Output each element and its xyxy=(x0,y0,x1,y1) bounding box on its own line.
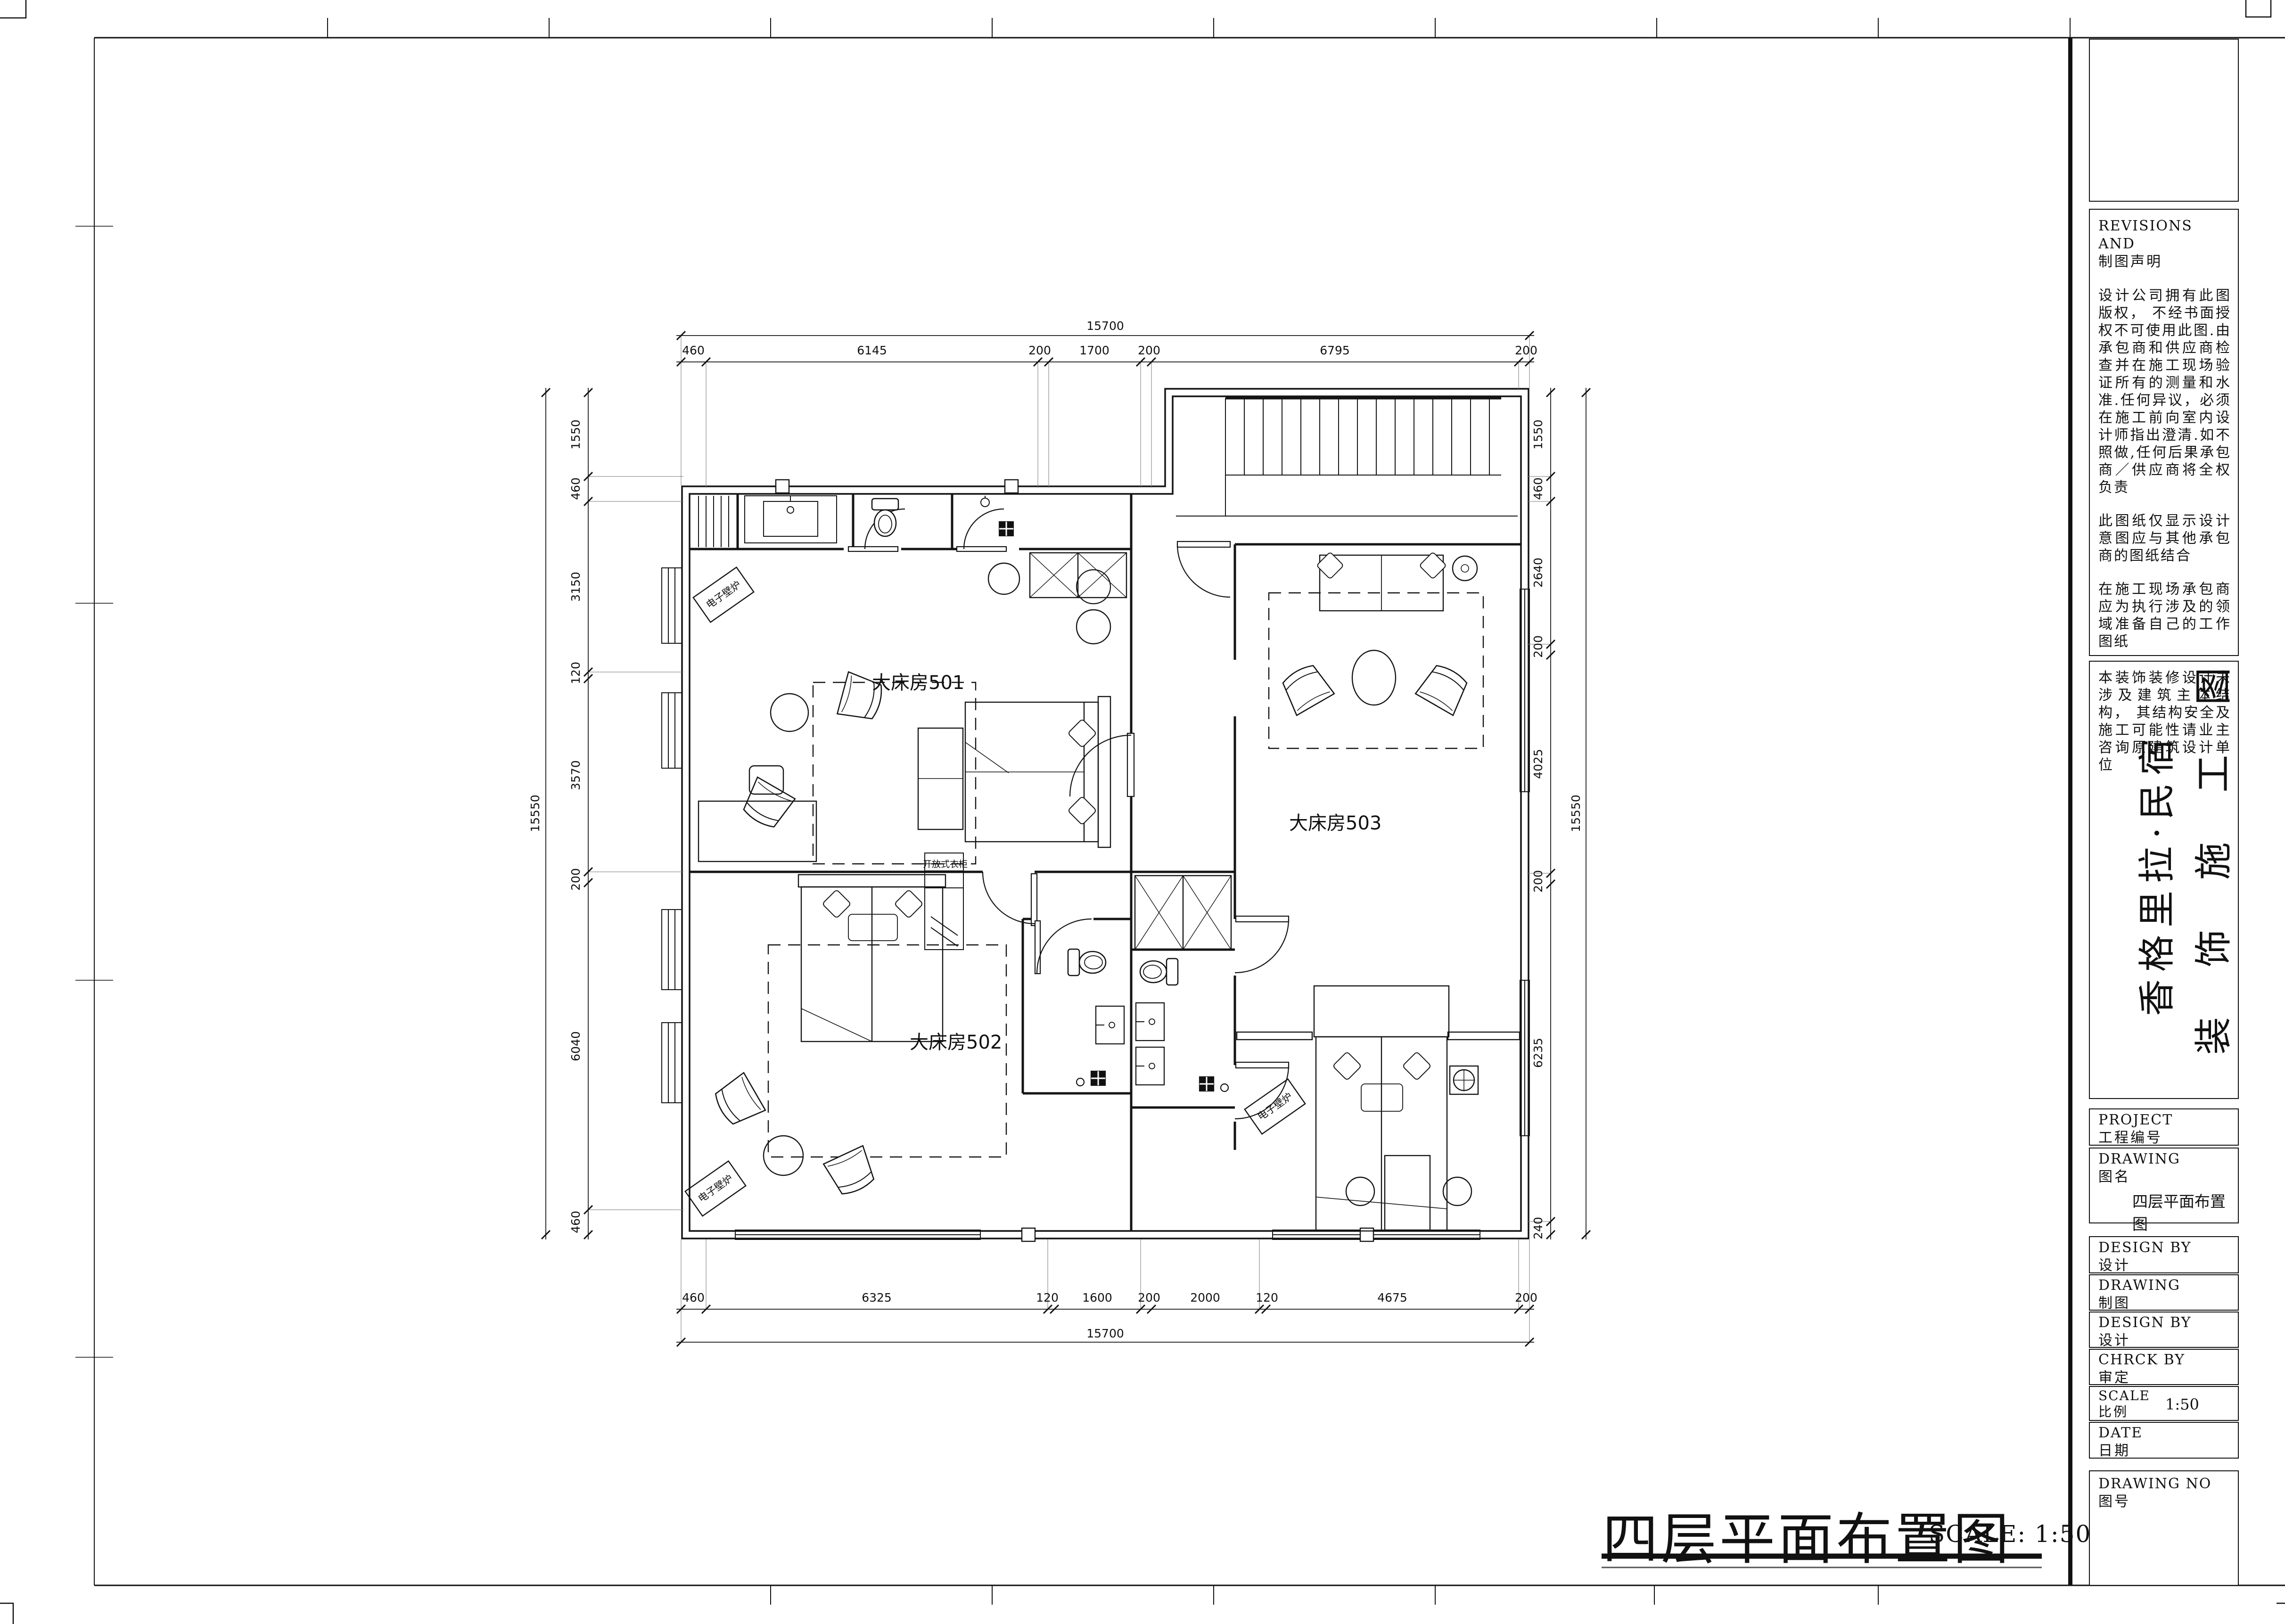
dim: 6040 xyxy=(569,1031,583,1061)
stool-hall xyxy=(1077,570,1110,604)
doors xyxy=(848,509,1289,1119)
column-markers xyxy=(776,480,1373,1241)
dim: 200 xyxy=(1531,635,1545,658)
sink-icon xyxy=(1136,1047,1164,1085)
revisions-heading-en: REVISIONS AND xyxy=(2098,217,2231,253)
cad-canvas: 大床房501 大床房502 大床房503 电子壁炉 电子壁炉 电子壁炉 开放式衣… xyxy=(0,0,2285,1624)
field-label-en: CHRCK BY xyxy=(2098,1351,2231,1369)
toilet-icon xyxy=(1068,949,1106,976)
field-drafting: DRAWING 制图 xyxy=(2089,1274,2239,1311)
dim: 4675 xyxy=(1377,1291,1407,1304)
field-check-by: CHRCK BY 审定 xyxy=(2089,1349,2239,1385)
fireplace-label: 电子壁炉 xyxy=(696,1173,735,1205)
field-label-zh: 图号 xyxy=(2098,1493,2231,1511)
shower-head-icon xyxy=(1077,1078,1084,1086)
field-label-en: DESIGN BY xyxy=(2098,1239,2231,1257)
dim: 200 xyxy=(1515,1291,1537,1304)
dim: 120 xyxy=(569,662,583,684)
dim: 3150 xyxy=(569,572,583,602)
dim-left-overall: 15550 xyxy=(528,795,542,832)
armchair-icon xyxy=(823,1146,879,1198)
dim-bottom-overall: 15700 xyxy=(1086,1327,1124,1340)
core-wardrobe xyxy=(1135,876,1231,950)
title-block-empty-box xyxy=(2089,39,2239,202)
field-design-by: DESIGN BY 设计 xyxy=(2089,1236,2239,1273)
dimension-labels: 15700 460 6145 200 1700 200 6795 200 460… xyxy=(528,319,1583,1340)
dim: 1700 xyxy=(1079,344,1110,357)
open-wardrobe-label: 开放式衣柜 xyxy=(923,859,968,869)
field-label-en: DESIGN BY xyxy=(2098,1314,2231,1332)
bathroom-502 xyxy=(1068,949,1124,1086)
armchair-icon xyxy=(1278,661,1334,715)
dim: 4025 xyxy=(1531,749,1545,779)
dim: 200 xyxy=(1515,344,1537,357)
sink-icon xyxy=(1096,1006,1124,1044)
sink-icon xyxy=(1136,1003,1164,1041)
note-paragraph: 设计公司拥有此图版权， 不经书面授权不可使用此图.由承包商和供应商检查并在施工现… xyxy=(2098,287,2231,496)
toilet-icon xyxy=(872,499,898,536)
oval-table-503 xyxy=(1352,650,1396,705)
dim: 6235 xyxy=(1531,1038,1545,1068)
bed-501 xyxy=(965,697,1110,847)
field-drawing-no: DRAWING NO 图号 xyxy=(2089,1470,2239,1586)
dim: 6795 xyxy=(1320,344,1350,357)
note-paragraph: 在施工现场承包商应为执行涉及的领域准备自己的工作图纸 xyxy=(2098,581,2231,650)
corner-mark-bottom-left xyxy=(0,1603,13,1624)
shower-drain-icon xyxy=(999,522,1013,536)
desk-503 xyxy=(1385,1156,1430,1230)
dim: 1600 xyxy=(1082,1291,1112,1304)
field-label-en: DRAWING NO xyxy=(2098,1475,2231,1493)
field-label-zh: 图名 xyxy=(2098,1168,2231,1186)
revisions-heading-zh: 制图声明 xyxy=(2098,253,2231,271)
dim: 6145 xyxy=(857,344,887,357)
dim: 460 xyxy=(569,477,583,500)
armchair-icon xyxy=(1415,661,1472,715)
field-label-zh: 日期 xyxy=(2098,1442,2231,1460)
dim: 3570 xyxy=(569,760,583,790)
note-paragraph: 此图纸仅显示设计意图应与其他承包商的图纸结合 xyxy=(2098,512,2231,565)
interior-walls xyxy=(690,494,1521,1231)
dim-top-overall: 15700 xyxy=(1086,319,1124,333)
scale-value: 1:50 xyxy=(2165,1395,2199,1413)
fireplace-label: 电子壁炉 xyxy=(1256,1091,1295,1123)
dim: 2640 xyxy=(1531,558,1545,588)
field-label-en: SCALE xyxy=(2098,1388,2231,1404)
armchair-icon xyxy=(739,777,795,832)
bathroom-501 xyxy=(699,496,1013,547)
sheet-scale-note: SCALE: 1:50 xyxy=(1929,1520,2091,1548)
shower-drain-icon xyxy=(1091,1071,1105,1085)
fireplace-label: 电子壁炉 xyxy=(704,579,743,611)
field-label-en: DRAWING xyxy=(2098,1277,2231,1295)
shower-drain-icon xyxy=(1200,1077,1214,1091)
drawing-sheet: 大床房501 大床房502 大床房503 电子壁炉 电子壁炉 电子壁炉 开放式衣… xyxy=(0,0,2285,1624)
round-table-501 xyxy=(771,694,808,731)
shower-head-icon xyxy=(1221,1084,1228,1091)
room-label-502: 大床房502 xyxy=(910,1032,1002,1053)
dim: 6325 xyxy=(862,1291,892,1304)
dim: 1550 xyxy=(1531,419,1545,450)
shower-head-icon xyxy=(981,498,989,507)
room-label-501: 大床房501 xyxy=(872,672,964,694)
dim: 2000 xyxy=(1190,1291,1220,1304)
field-date: DATE 日期 xyxy=(2089,1422,2239,1459)
field-scale: SCALE 比例 1:50 xyxy=(2089,1386,2239,1421)
project-subtitle-vertical: 装 饰 施 工 图 xyxy=(2183,772,2238,1055)
rug-501 xyxy=(813,682,976,864)
toilet-icon xyxy=(1140,959,1178,985)
field-label-zh: 设计 xyxy=(2098,1332,2231,1350)
field-label-en: DATE xyxy=(2098,1424,2231,1442)
dim: 1550 xyxy=(569,419,583,450)
field-label-zh: 比例 xyxy=(2098,1404,2231,1420)
sheet-frame xyxy=(0,0,2285,1624)
dim: 200 xyxy=(1028,344,1051,357)
lamp-503 xyxy=(1453,556,1477,581)
project-title-vertical: 香格里拉·民宿 xyxy=(2128,790,2180,1016)
field-label-zh: 制图 xyxy=(2098,1295,2231,1312)
field-label-zh: 审定 xyxy=(2098,1369,2231,1387)
room-label-503: 大床房503 xyxy=(1289,812,1381,834)
room-503 xyxy=(1237,552,1520,1231)
corner-mark-top-right xyxy=(2246,0,2271,17)
dim: 200 xyxy=(1138,1291,1160,1304)
revisions-box: REVISIONS AND 制图声明 设计公司拥有此图版权， 不经书面授权不可使… xyxy=(2089,209,2239,656)
frame-ticks-top xyxy=(328,18,1878,38)
side-table-501 xyxy=(1077,610,1110,644)
corner-mark-top-left xyxy=(0,0,26,18)
field-label-zh: 工程编号 xyxy=(2098,1129,2231,1147)
sofa-503 xyxy=(1316,552,1447,611)
dim: 200 xyxy=(1531,870,1545,893)
dim: 460 xyxy=(682,344,705,357)
dim: 200 xyxy=(569,868,583,891)
dim: 460 xyxy=(1531,477,1545,500)
dim: 460 xyxy=(569,1211,583,1233)
dim: 200 xyxy=(1138,344,1160,357)
windows xyxy=(662,568,1529,1239)
field-project: PROJECT 工程编号 xyxy=(2089,1108,2239,1146)
dim: 460 xyxy=(682,1291,705,1304)
field-drawing-name: DRAWING 图名 四层平面布置图 xyxy=(2089,1148,2239,1223)
bed-502 xyxy=(798,875,945,1042)
dim: 120 xyxy=(1036,1291,1059,1304)
drawing-name-value: 四层平面布置图 xyxy=(2098,1186,2231,1234)
field-label-en: PROJECT xyxy=(2098,1111,2231,1129)
room-501 xyxy=(693,553,1126,864)
field-label-en: DRAWING xyxy=(2098,1150,2231,1168)
staircase xyxy=(1176,398,1518,516)
dim: 120 xyxy=(1256,1291,1278,1304)
dim: 240 xyxy=(1531,1217,1545,1239)
armchair-icon xyxy=(711,1073,765,1129)
stool-501 xyxy=(988,563,1019,594)
field-design-by2: DESIGN BY 设计 xyxy=(2089,1312,2239,1348)
floor-plan xyxy=(662,389,1529,1241)
bathroom-503 xyxy=(1136,959,1228,1091)
round-table-502 xyxy=(764,1136,803,1175)
field-label-zh: 设计 xyxy=(2098,1257,2231,1275)
dim-right-overall: 15550 xyxy=(1569,795,1583,832)
title-strip-divider xyxy=(2068,38,2072,1585)
nightstand-lamp-503 xyxy=(1450,1066,1478,1094)
